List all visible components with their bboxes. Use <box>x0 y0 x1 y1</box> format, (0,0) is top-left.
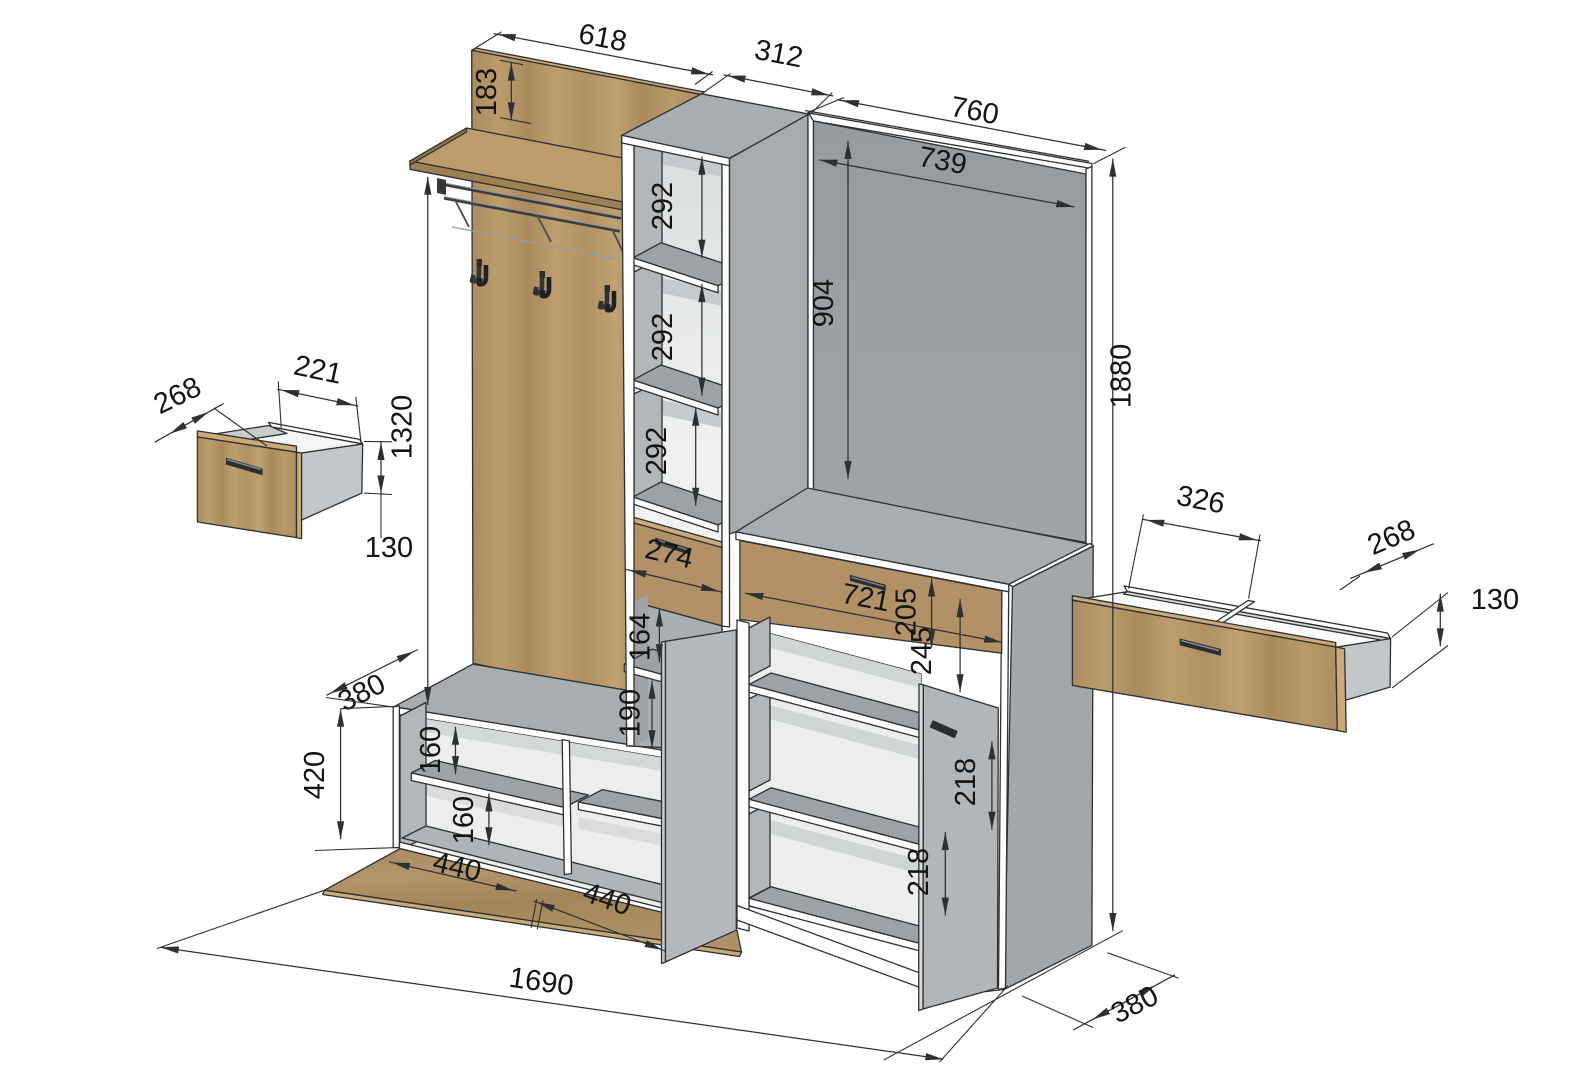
svg-text:904: 904 <box>808 279 840 327</box>
svg-text:292: 292 <box>641 427 673 475</box>
svg-text:205: 205 <box>891 588 923 636</box>
svg-text:190: 190 <box>615 689 647 737</box>
svg-text:1320: 1320 <box>387 395 419 460</box>
svg-text:292: 292 <box>647 313 679 361</box>
svg-text:160: 160 <box>448 796 480 844</box>
svg-text:218: 218 <box>903 848 935 896</box>
svg-text:160: 160 <box>415 726 447 774</box>
svg-text:1880: 1880 <box>1106 344 1138 409</box>
svg-text:420: 420 <box>299 751 331 799</box>
svg-text:130: 130 <box>1471 584 1519 616</box>
svg-text:164: 164 <box>624 613 656 661</box>
svg-text:218: 218 <box>950 758 982 806</box>
svg-text:183: 183 <box>471 68 503 116</box>
svg-text:292: 292 <box>647 182 679 230</box>
svg-text:130: 130 <box>365 532 413 564</box>
